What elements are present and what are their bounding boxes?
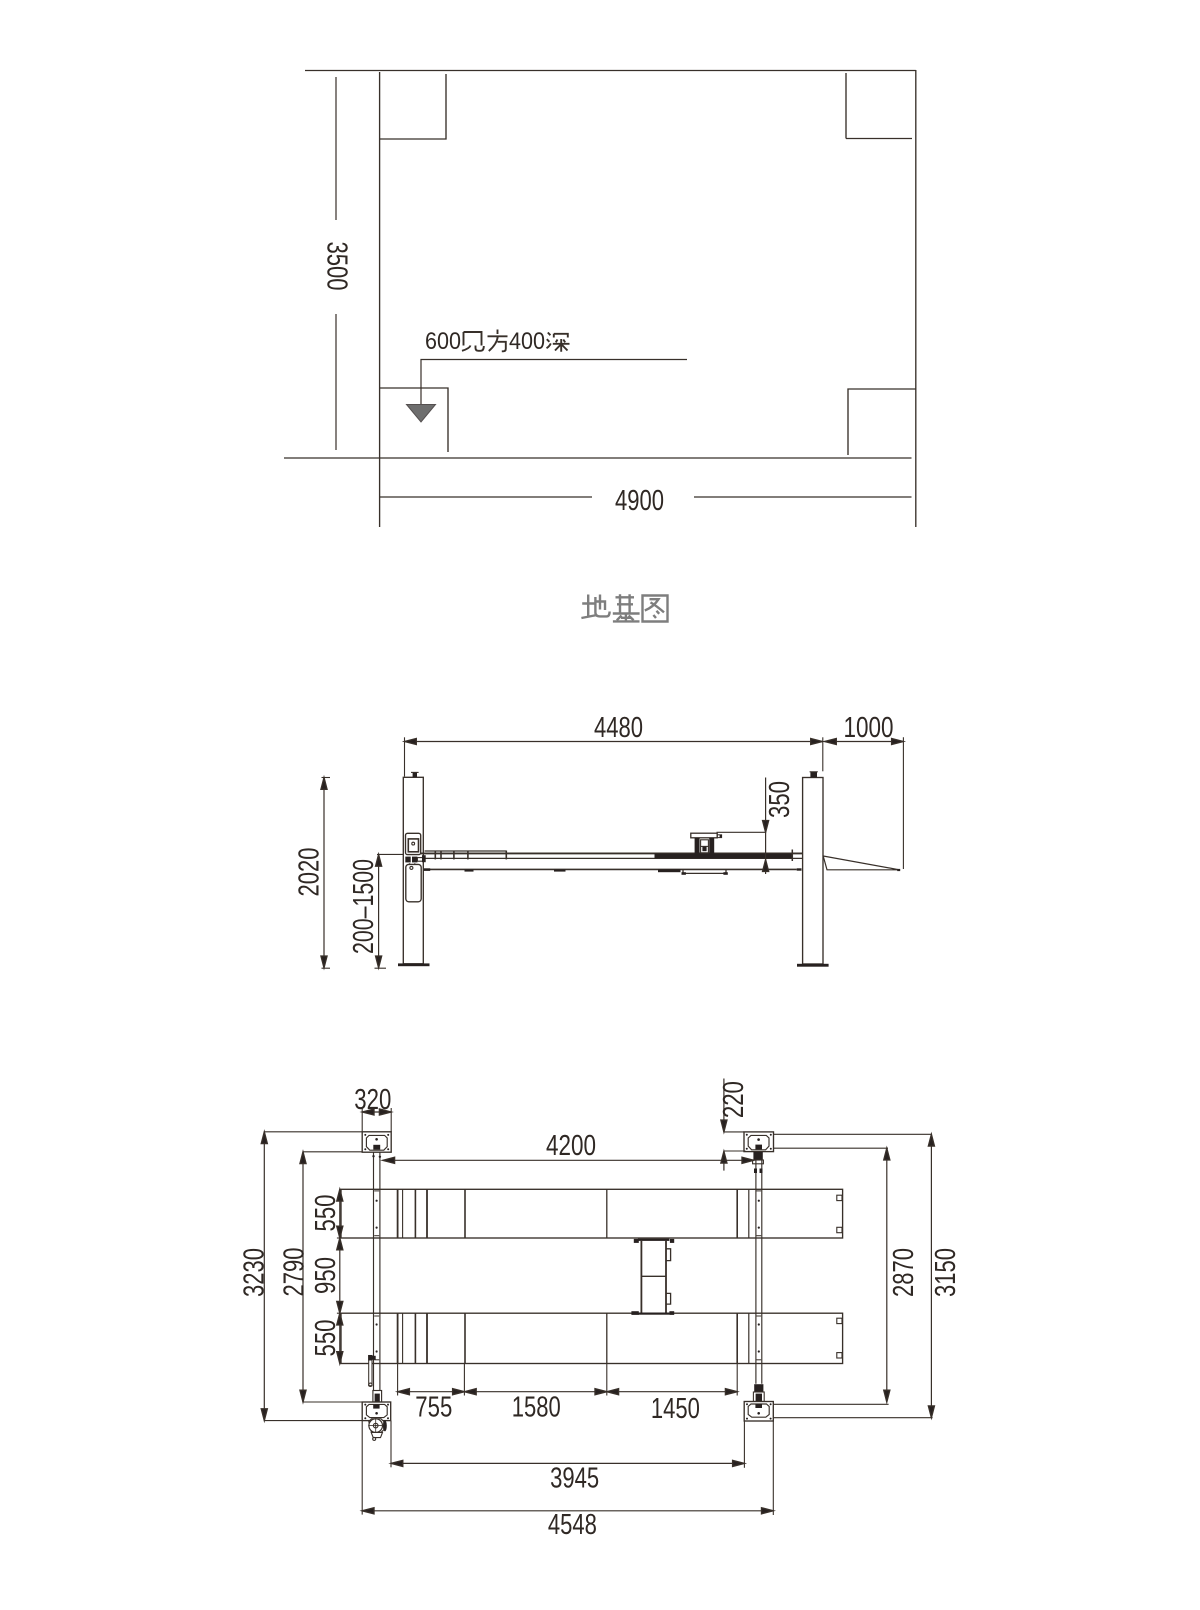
- svg-text:550: 550: [310, 1195, 342, 1232]
- svg-text:3230: 3230: [239, 1248, 271, 1297]
- svg-text:550: 550: [310, 1320, 342, 1357]
- svg-text:220: 220: [718, 1081, 750, 1118]
- svg-text:1450: 1450: [651, 1393, 700, 1425]
- svg-text:4200: 4200: [546, 1130, 596, 1162]
- svg-text:4548: 4548: [548, 1509, 597, 1541]
- svg-text:950: 950: [310, 1257, 342, 1294]
- svg-text:350: 350: [764, 781, 796, 818]
- svg-text:4900: 4900: [615, 485, 664, 517]
- svg-text:1580: 1580: [512, 1392, 561, 1424]
- svg-text:4480: 4480: [594, 712, 643, 744]
- svg-text:2870: 2870: [888, 1248, 920, 1297]
- svg-text:3945: 3945: [550, 1463, 599, 1495]
- svg-text:3500: 3500: [321, 242, 353, 291]
- svg-text:3150: 3150: [930, 1248, 962, 1297]
- svg-text:320: 320: [354, 1084, 391, 1116]
- svg-text:200–1500: 200–1500: [348, 859, 380, 954]
- svg-text:2790: 2790: [279, 1248, 311, 1297]
- svg-text:400: 400: [509, 328, 545, 355]
- svg-text:755: 755: [415, 1391, 452, 1423]
- svg-text:600: 600: [425, 328, 461, 355]
- svg-text:2020: 2020: [294, 848, 326, 897]
- svg-text:1000: 1000: [844, 712, 894, 744]
